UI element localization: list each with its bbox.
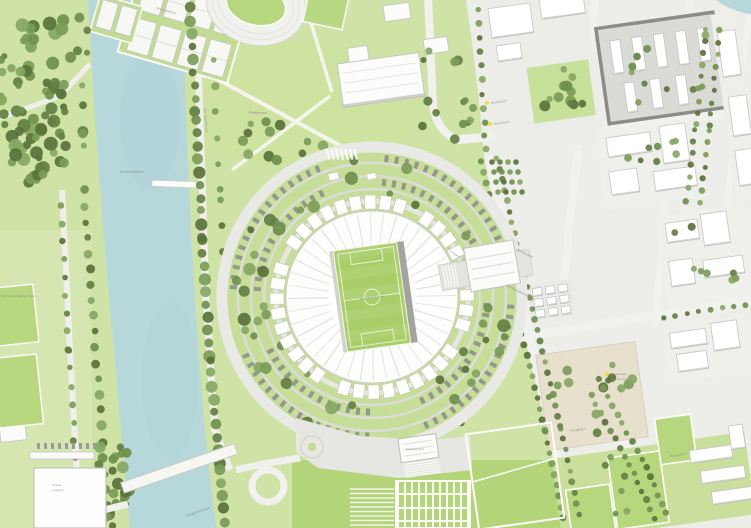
city-block <box>528 279 577 321</box>
stand-segment <box>368 385 379 399</box>
tree <box>109 467 117 475</box>
tree <box>708 111 713 116</box>
parking-bay <box>37 443 40 449</box>
tree <box>44 137 58 151</box>
tree <box>117 443 124 450</box>
parking-bay <box>51 443 54 449</box>
tree <box>186 28 197 39</box>
tree <box>576 512 582 518</box>
tree <box>477 35 483 41</box>
tree <box>661 315 666 320</box>
tree <box>219 222 226 229</box>
tree <box>643 496 650 503</box>
tree <box>519 189 525 195</box>
tree <box>15 127 24 136</box>
tree <box>68 384 74 390</box>
tree <box>185 2 196 13</box>
tree <box>459 120 467 128</box>
tree <box>552 403 558 409</box>
tree <box>208 394 220 406</box>
tree <box>493 179 499 185</box>
tree <box>214 464 225 475</box>
tree <box>715 40 721 46</box>
tree <box>479 76 486 83</box>
sports-field <box>608 451 670 528</box>
sports-field <box>0 354 44 428</box>
tree <box>81 143 87 149</box>
tree <box>632 471 637 476</box>
parking-bay <box>93 443 96 449</box>
tree <box>605 394 610 399</box>
tree <box>59 221 66 228</box>
tree <box>640 457 645 462</box>
label-hall-1: Arena <box>52 483 62 487</box>
tree <box>716 52 721 57</box>
parking-bay <box>79 443 82 449</box>
tree <box>699 62 706 69</box>
tree <box>61 256 67 262</box>
building <box>700 211 730 246</box>
tree <box>218 502 229 513</box>
tree <box>697 200 703 206</box>
tree <box>700 50 706 56</box>
tree <box>212 433 222 443</box>
stand-segment <box>270 293 284 304</box>
stand-segment <box>352 383 365 398</box>
tree <box>629 438 636 445</box>
site-plan-map: Red Bull Arena Elsterbecken Festwiese Te… <box>0 0 751 528</box>
city-block <box>662 314 751 383</box>
tree <box>92 328 99 335</box>
tree <box>682 198 689 205</box>
tree <box>509 220 514 225</box>
tree <box>191 82 199 90</box>
tree <box>96 420 106 430</box>
tree <box>647 473 654 480</box>
tree <box>707 122 713 128</box>
tree <box>117 461 129 473</box>
tree <box>79 101 87 109</box>
tree <box>511 189 517 195</box>
label-water: Elsterbecken <box>120 170 144 174</box>
tree <box>597 410 604 417</box>
tree <box>304 138 312 146</box>
tree <box>15 83 21 89</box>
tree <box>64 327 71 334</box>
tree <box>481 133 487 139</box>
tree <box>655 493 661 499</box>
tree <box>28 34 39 45</box>
parking-row <box>37 443 96 449</box>
tree <box>197 235 207 245</box>
tree <box>43 17 57 31</box>
tree <box>530 306 536 312</box>
tree <box>193 141 203 151</box>
tree <box>626 462 631 467</box>
stand-segment <box>270 277 285 290</box>
tree <box>544 369 551 376</box>
kiosk <box>367 173 377 180</box>
tree <box>195 218 207 230</box>
parking-bay <box>356 407 361 414</box>
tree <box>189 106 200 117</box>
tree <box>80 203 88 211</box>
tree <box>207 356 215 364</box>
tree <box>35 123 47 135</box>
tree <box>507 209 512 214</box>
tree <box>262 117 271 126</box>
tree <box>62 275 68 281</box>
tree <box>58 133 65 140</box>
tree <box>478 62 484 68</box>
tree <box>197 206 205 214</box>
hall-building <box>383 2 411 21</box>
label-park-west: Richard-Wagner-Hain <box>1 294 36 298</box>
tree <box>97 405 105 413</box>
tree <box>211 419 222 430</box>
tree <box>7 64 15 72</box>
tree <box>644 464 651 471</box>
building <box>668 258 695 287</box>
tree <box>432 109 440 117</box>
tree <box>202 325 213 336</box>
tree <box>499 169 505 175</box>
tree <box>537 338 544 345</box>
tree <box>425 48 432 55</box>
tree <box>696 99 702 105</box>
label-stop-3a: Haltestelle <box>611 372 627 376</box>
tree <box>731 304 736 309</box>
tree <box>635 480 640 485</box>
tree <box>199 273 211 285</box>
tree <box>573 500 580 507</box>
tree <box>200 286 211 297</box>
tree <box>64 311 70 317</box>
tree <box>659 501 666 508</box>
tree <box>568 478 575 485</box>
parking-bay <box>384 155 389 162</box>
tree <box>703 165 708 170</box>
tree <box>189 43 197 51</box>
tree <box>477 48 484 55</box>
parking-bay <box>507 304 514 308</box>
tree <box>531 384 538 391</box>
tree <box>703 27 708 32</box>
tree <box>79 82 85 88</box>
tree <box>539 348 545 354</box>
label-hall-2: Leipzig <box>52 488 64 492</box>
stand-segment <box>379 195 392 210</box>
tree <box>491 169 497 175</box>
tree <box>515 169 521 175</box>
tree <box>95 390 105 400</box>
tree <box>46 57 59 70</box>
tree <box>483 146 490 153</box>
tree <box>531 316 538 323</box>
tree <box>35 154 42 161</box>
tree <box>238 136 248 146</box>
tree <box>609 402 616 409</box>
stand-segment <box>271 307 287 320</box>
city-block <box>476 0 605 157</box>
tree <box>61 108 68 115</box>
tree <box>693 121 699 127</box>
tree <box>272 155 282 165</box>
building <box>710 320 740 351</box>
tree <box>483 180 490 187</box>
tree <box>476 20 483 27</box>
tree <box>211 82 219 90</box>
roundabout-island <box>308 443 316 451</box>
tree <box>467 117 474 124</box>
tree <box>696 309 701 314</box>
tree <box>450 134 460 144</box>
tree <box>520 341 527 348</box>
tree <box>90 343 99 352</box>
tree <box>50 78 60 88</box>
tree <box>554 413 561 420</box>
tree <box>217 186 224 193</box>
tree <box>699 187 706 194</box>
tree <box>624 430 630 436</box>
tree <box>95 376 102 383</box>
parking-bay <box>366 408 370 415</box>
tree <box>504 197 511 204</box>
parking-bay <box>72 443 75 449</box>
tree <box>74 13 84 23</box>
tree <box>589 392 595 398</box>
tree <box>62 293 68 299</box>
tree <box>524 352 531 359</box>
tree <box>700 175 706 181</box>
tree <box>476 7 481 12</box>
tree <box>212 108 219 115</box>
tree <box>505 159 511 165</box>
tree <box>202 301 210 309</box>
tree <box>501 179 507 185</box>
tree <box>211 57 217 63</box>
tree <box>41 111 49 119</box>
label-meadow: Festwiese <box>249 111 267 115</box>
tree <box>702 38 708 44</box>
tree <box>55 22 68 35</box>
tree <box>214 135 220 141</box>
tree <box>203 312 214 323</box>
tree <box>699 74 704 79</box>
tree <box>479 92 484 97</box>
tree <box>503 189 509 195</box>
tree <box>495 189 501 195</box>
tree <box>196 181 204 189</box>
tree <box>66 348 72 354</box>
tree <box>86 264 95 273</box>
tree <box>695 85 701 91</box>
tree <box>615 412 622 419</box>
tree <box>39 170 48 179</box>
tree <box>550 391 557 398</box>
tree <box>216 478 226 488</box>
pin-icon <box>605 372 609 376</box>
tree <box>16 67 26 77</box>
pin-icon <box>488 122 492 126</box>
stand-segment <box>458 304 473 317</box>
tree <box>537 406 543 412</box>
tree <box>220 518 230 528</box>
tree <box>189 69 197 77</box>
tree <box>703 152 709 158</box>
parking-bay <box>58 443 61 449</box>
tree <box>530 373 536 379</box>
tree <box>690 138 696 144</box>
tree <box>83 220 89 226</box>
label-gate-south: Eingang Süd <box>406 447 424 451</box>
tree <box>716 27 722 33</box>
parking-bay <box>382 179 387 186</box>
tree <box>43 79 52 88</box>
tree <box>217 197 224 204</box>
tree <box>547 451 552 456</box>
tree <box>551 471 558 478</box>
tree <box>58 202 65 209</box>
building <box>665 219 699 243</box>
tree <box>558 426 563 431</box>
tree <box>56 89 67 100</box>
tree <box>200 262 210 272</box>
tree <box>217 490 228 501</box>
tree <box>619 420 624 425</box>
tree <box>243 149 253 159</box>
tree <box>65 52 76 63</box>
tree <box>639 489 644 494</box>
tree <box>196 194 205 203</box>
tree <box>743 302 749 308</box>
tree <box>600 385 607 392</box>
tree <box>720 305 725 310</box>
water-shade <box>120 50 180 190</box>
tree <box>109 489 119 499</box>
tree <box>69 402 76 409</box>
tree <box>713 64 719 70</box>
thin-building <box>30 452 94 459</box>
tree <box>191 115 201 125</box>
tree <box>607 428 613 434</box>
label-stop-3b: Sportforum <box>611 377 628 381</box>
tree <box>462 97 469 104</box>
tree <box>32 134 40 142</box>
tree <box>507 169 513 175</box>
tree <box>602 419 609 426</box>
tree <box>210 408 218 416</box>
tree <box>59 158 69 168</box>
tree <box>86 281 94 289</box>
tree <box>418 122 427 131</box>
tree <box>593 402 598 407</box>
tree <box>478 158 484 164</box>
tree <box>275 120 286 131</box>
tree <box>560 436 566 442</box>
tree <box>617 445 623 451</box>
tree <box>513 159 519 165</box>
tree <box>690 150 696 156</box>
tree <box>707 128 712 133</box>
tree <box>450 57 459 66</box>
parking-bay <box>86 443 89 449</box>
water-shade <box>142 300 198 460</box>
tree <box>91 360 100 369</box>
tree <box>204 338 213 347</box>
tree <box>652 482 657 487</box>
tree <box>548 460 555 467</box>
stand-segment <box>382 383 395 399</box>
tree <box>692 127 697 132</box>
tree <box>206 381 218 393</box>
tree <box>198 249 207 258</box>
tree <box>652 516 658 522</box>
tree <box>265 127 275 137</box>
tree <box>88 297 95 304</box>
tree <box>215 161 221 167</box>
tree <box>663 509 669 515</box>
stand-segment <box>349 196 362 212</box>
tree <box>192 153 203 164</box>
tree <box>688 161 694 167</box>
tree <box>708 307 714 313</box>
tree <box>565 457 571 463</box>
site-plan: Red Bull Arena Elsterbecken Festwiese Te… <box>0 0 751 528</box>
tree <box>78 129 87 138</box>
tree <box>469 104 477 112</box>
tree <box>711 76 716 81</box>
tree <box>18 107 25 114</box>
tree <box>687 174 692 179</box>
tree <box>539 416 546 423</box>
tree <box>695 111 700 116</box>
tree <box>299 150 307 158</box>
tree <box>109 455 118 464</box>
tree <box>572 490 578 496</box>
tree <box>535 395 541 401</box>
tree <box>192 95 200 103</box>
tree <box>187 54 199 66</box>
tree <box>647 506 653 512</box>
tree <box>672 313 678 319</box>
tree <box>184 16 195 27</box>
tree <box>23 141 31 149</box>
tree <box>527 363 533 369</box>
tree <box>59 80 69 90</box>
tree <box>61 141 71 151</box>
tree <box>497 159 503 165</box>
tree <box>193 167 205 179</box>
tree <box>634 448 640 454</box>
tree <box>89 311 98 320</box>
kiosk <box>328 172 339 181</box>
tree <box>59 238 65 244</box>
tree <box>9 148 22 161</box>
tree <box>568 469 573 474</box>
stand-segment <box>365 195 376 209</box>
tree <box>480 105 487 112</box>
tree <box>685 311 690 316</box>
tree <box>489 159 495 165</box>
block-ground <box>662 314 751 383</box>
pin-icon <box>485 101 489 105</box>
tree <box>16 18 29 31</box>
pier <box>152 180 196 188</box>
tree <box>84 234 91 241</box>
hall-annex <box>347 46 369 63</box>
tree <box>543 359 548 364</box>
